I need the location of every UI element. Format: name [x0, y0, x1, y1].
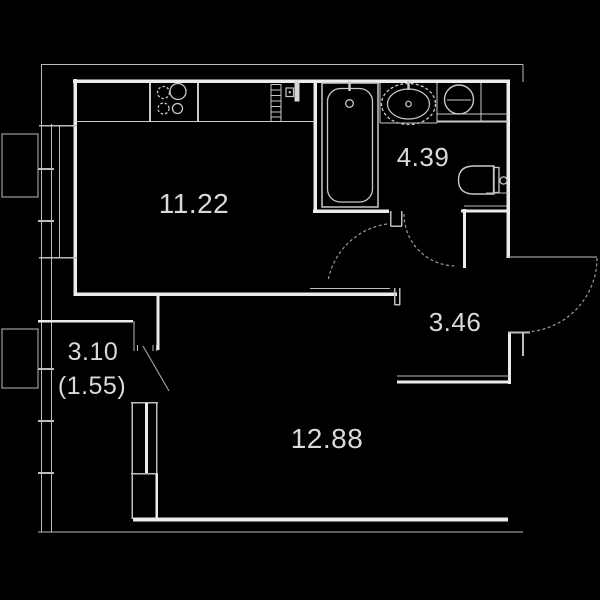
kitchen-area-label: 11.22: [159, 188, 230, 219]
window-caps: [39, 126, 77, 258]
sink-icon: [380, 81, 437, 125]
ac-unit-boxes: [2, 134, 38, 388]
bathroom-area-label: 4.39: [397, 142, 450, 172]
bathtub-outer: [322, 83, 378, 207]
toilet-icon: [459, 166, 509, 194]
bathtub-icon: [322, 81, 378, 207]
stove-icon: [158, 84, 187, 115]
counter-dividers: [150, 83, 198, 121]
sink-basin: [388, 89, 430, 119]
bathroom-door-jamb: [391, 211, 403, 226]
panel-dot: [289, 91, 291, 93]
balcony-window-sides: [132, 402, 157, 474]
balcony-reduced-area-label: (1.55): [58, 372, 126, 400]
washer-sides: [437, 83, 481, 121]
ac-unit-box-icon: [2, 329, 38, 388]
balcony-door-sash-icon: [143, 346, 169, 391]
toilet-valve: [500, 177, 507, 184]
living-room-door-jamb: [395, 288, 401, 305]
door-jambs: [391, 211, 598, 356]
entrance-bottom-jamb: [508, 333, 530, 357]
room-labels: 11.22 4.39 3.46 12.88 3.10 (1.55): [58, 142, 481, 454]
burner: [158, 87, 170, 99]
kitchen-counter: [75, 83, 315, 122]
radiator-icon: [271, 85, 281, 122]
kitchen-door-arc-icon: [328, 224, 387, 281]
bathtub-drain: [346, 100, 354, 108]
ac-unit-box-icon: [2, 134, 38, 197]
balcony-window-caps: [131, 403, 158, 474]
radiator-fins: [271, 90, 281, 117]
exterior-outline: [38, 65, 523, 533]
toilet-bowl: [459, 166, 495, 194]
kitchen-fixtures: [75, 81, 315, 122]
floor-plan-canvas: 11.22 4.39 3.46 12.88 3.10 (1.55): [0, 0, 600, 600]
burner: [170, 84, 186, 100]
washing-machine-icon: [437, 83, 508, 122]
balcony-area-label: 3.10: [68, 338, 119, 366]
sink-drain: [406, 101, 412, 107]
bathtub-inner: [328, 89, 373, 203]
burner: [173, 104, 183, 114]
floor-plan: 11.22 4.39 3.46 12.88 3.10 (1.55): [0, 0, 600, 600]
burner: [158, 103, 169, 114]
hallway-area-label: 3.46: [429, 307, 482, 337]
entrance-door-arc-icon: [523, 258, 597, 332]
vent-stub-icon: [295, 81, 300, 102]
electric-panel-icon: [286, 88, 294, 97]
kitchen-window-icon: [38, 125, 77, 258]
bathroom-door-arc-icon: [404, 214, 456, 266]
living-room-area-label: 12.88: [291, 423, 364, 454]
